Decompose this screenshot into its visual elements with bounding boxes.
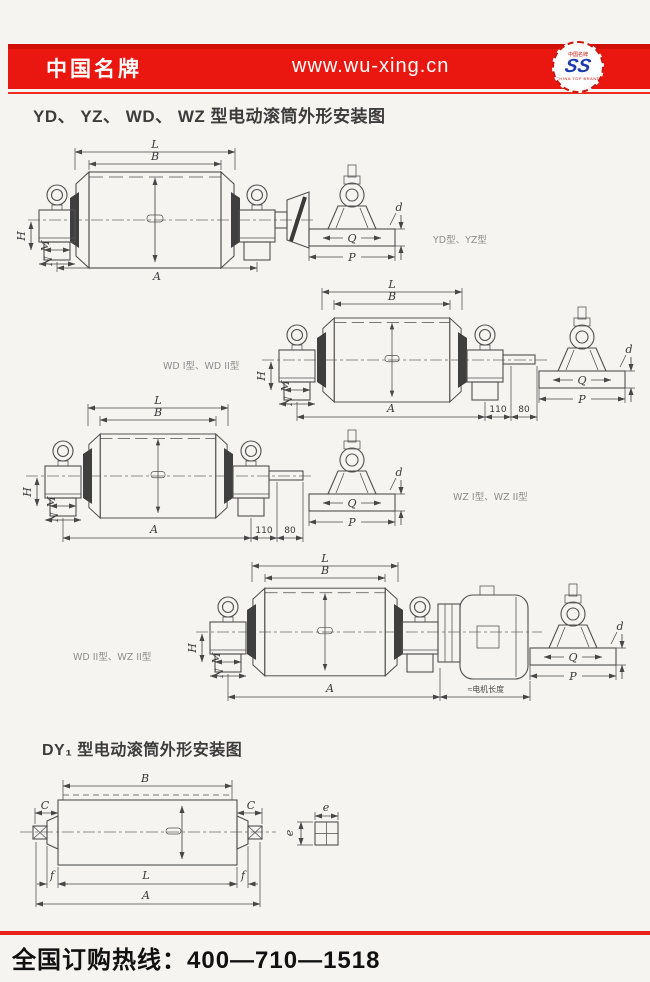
svg-text:110: 110 [255,526,272,536]
svg-text:f: f [240,869,247,882]
svg-text:A: A [141,889,150,902]
svg-text:A: A [325,682,334,695]
svg-text:A: A [152,270,161,283]
svg-text:L: L [141,869,149,882]
variant-label-row1: YD型、YZ型 [432,235,487,246]
svg-text:80: 80 [284,526,296,536]
motor-drawing [438,586,528,679]
diagram-canvas: H M N Q [0,0,650,982]
left-shaft-stub [33,816,58,849]
row1-assembly-drawing: L B A YD型、YZ型 [15,138,487,283]
svg-text:B: B [387,290,396,303]
variant-label-row3: WZ I型、WZ II型 [453,492,528,503]
svg-text:e: e [323,801,330,814]
shaft-square-detail: e e [283,801,338,845]
dy1-assembly-drawing: B C C [20,772,338,907]
right-shaft-stub [237,816,262,849]
svg-text:C: C [41,799,50,812]
svg-text:B: B [150,150,159,163]
catalog-page: 中国名牌 www.wu-xing.cn 中国名牌 SS CHINA TOP BR… [0,0,650,982]
svg-text:C: C [247,799,256,812]
variant-label-row4: WD II型、WZ II型 [73,652,152,663]
svg-text:A: A [386,402,395,415]
row2-assembly-drawing: L B A 110 80 WD I型、WD II型 [163,278,635,421]
motor-length-note: ≈电机长度 [468,684,504,694]
variant-label-row2: WD I型、WD II型 [163,361,240,372]
svg-text:f: f [49,869,56,882]
svg-text:80: 80 [518,405,530,415]
svg-text:110: 110 [489,405,506,415]
svg-text:B: B [153,406,162,419]
row3-assembly-drawing: L B A 110 80 WZ I型、WZ II型 [21,394,528,542]
svg-text:A: A [149,523,158,536]
svg-text:e: e [283,829,296,836]
footer-divider [0,931,650,935]
row4-assembly-drawing: L B A ≈电机长度 WD II型、WZ II型 [73,552,626,701]
hotline-text: 全国订购热线：400—710—1518 [12,940,380,975]
svg-text:B: B [140,772,149,785]
svg-text:B: B [320,564,329,577]
